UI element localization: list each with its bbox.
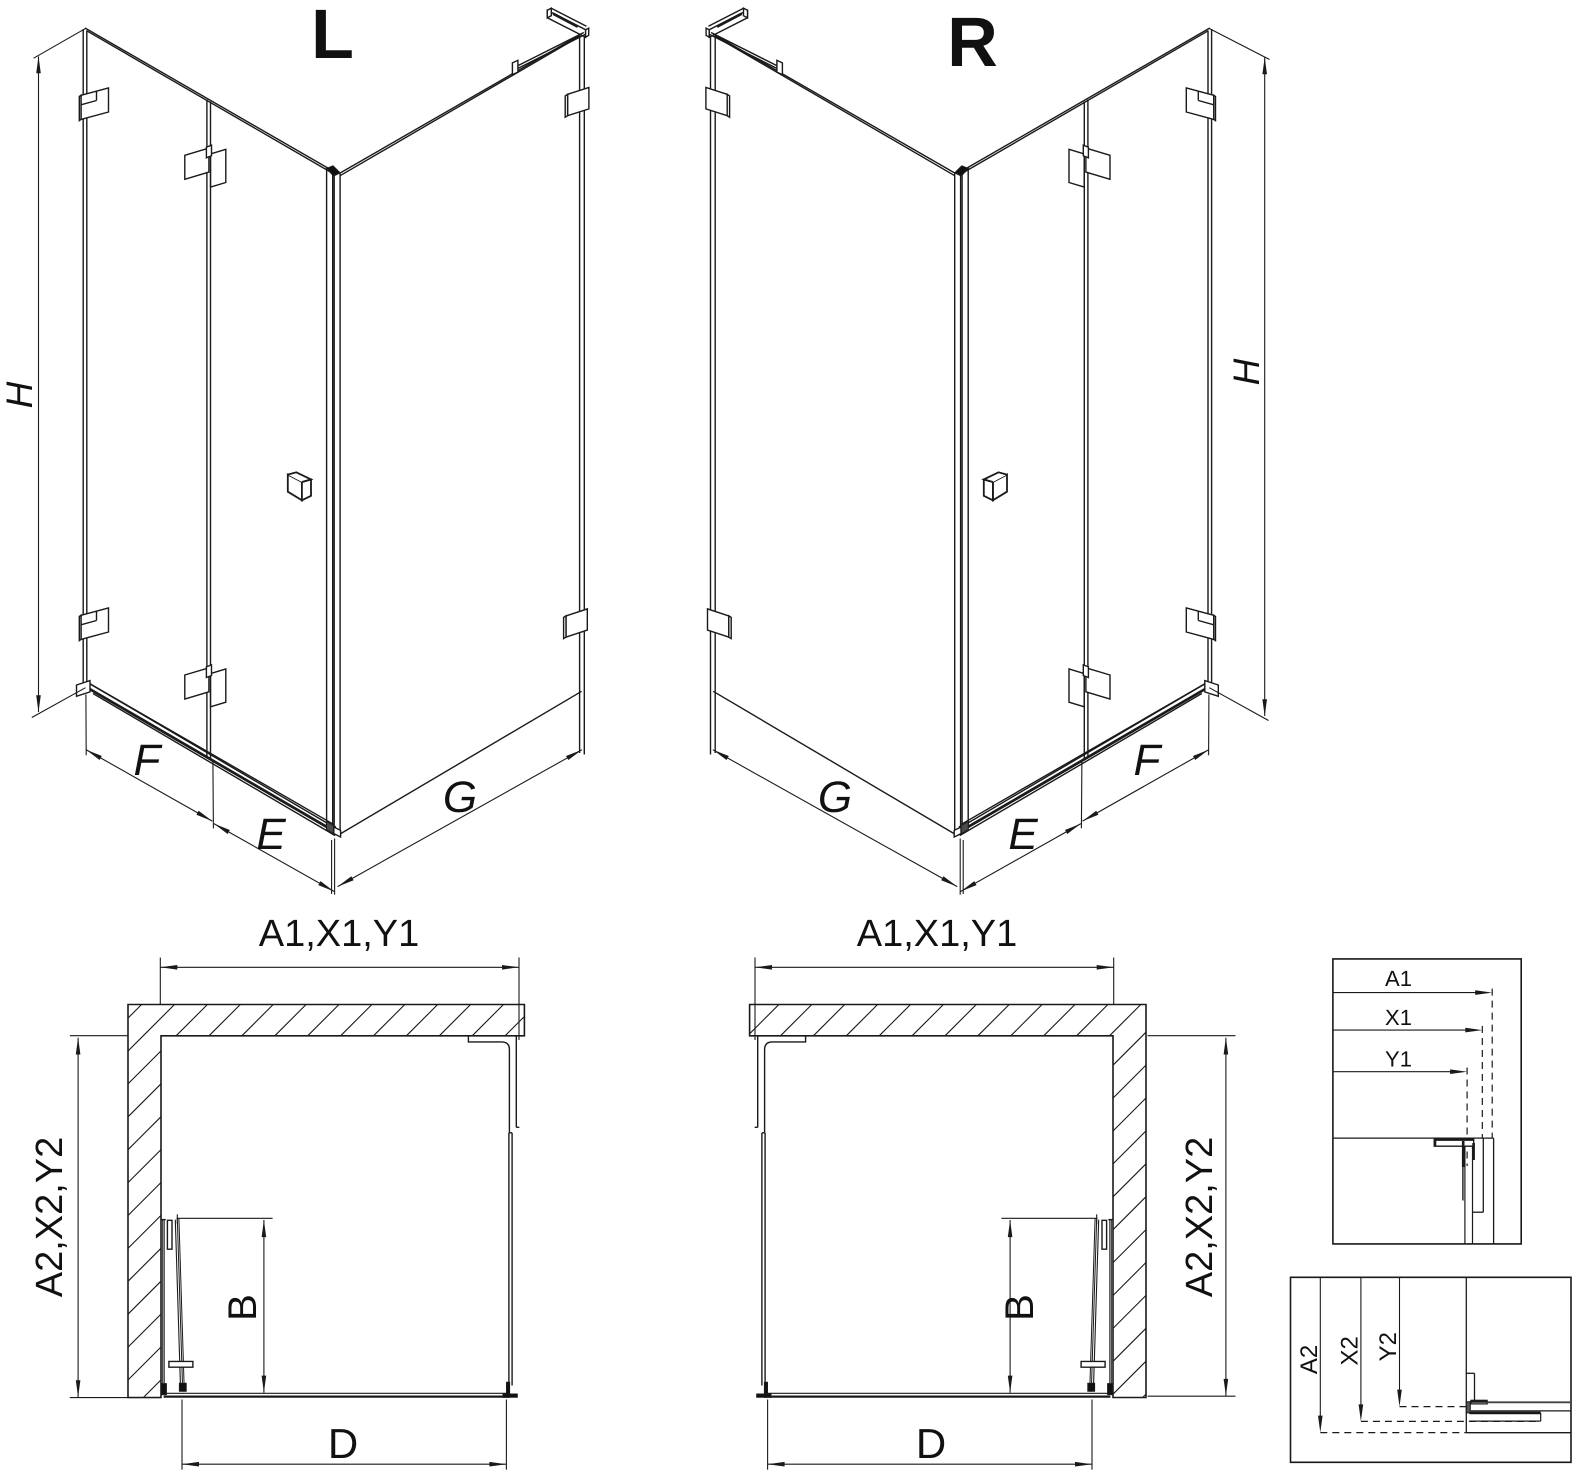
svg-text:A1,X1,Y1: A1,X1,Y1 [857, 913, 1018, 955]
svg-text:H: H [0, 381, 40, 408]
svg-text:F: F [1134, 736, 1163, 785]
svg-text:E: E [256, 810, 286, 859]
svg-text:X2: X2 [1336, 1336, 1363, 1365]
svg-text:A2: A2 [1296, 1345, 1323, 1374]
svg-text:L: L [311, 0, 354, 73]
svg-text:A2,X2,Y2: A2,X2,Y2 [1179, 1137, 1221, 1298]
svg-text:A2,X2,Y2: A2,X2,Y2 [29, 1137, 71, 1298]
svg-text:X1: X1 [1385, 1005, 1412, 1030]
svg-text:A1: A1 [1385, 966, 1412, 991]
svg-text:G: G [443, 773, 477, 822]
svg-text:R: R [947, 3, 998, 81]
svg-text:B: B [221, 1294, 265, 1321]
svg-text:D: D [916, 1420, 946, 1467]
svg-text:G: G [818, 773, 852, 822]
svg-text:H: H [1226, 358, 1267, 385]
svg-text:A1,X1,Y1: A1,X1,Y1 [259, 913, 420, 955]
svg-text:F: F [134, 736, 163, 785]
svg-text:D: D [328, 1420, 358, 1467]
svg-text:Y1: Y1 [1385, 1046, 1412, 1071]
svg-text:E: E [1008, 810, 1038, 859]
svg-text:Y2: Y2 [1375, 1332, 1402, 1361]
svg-text:B: B [998, 1294, 1042, 1321]
